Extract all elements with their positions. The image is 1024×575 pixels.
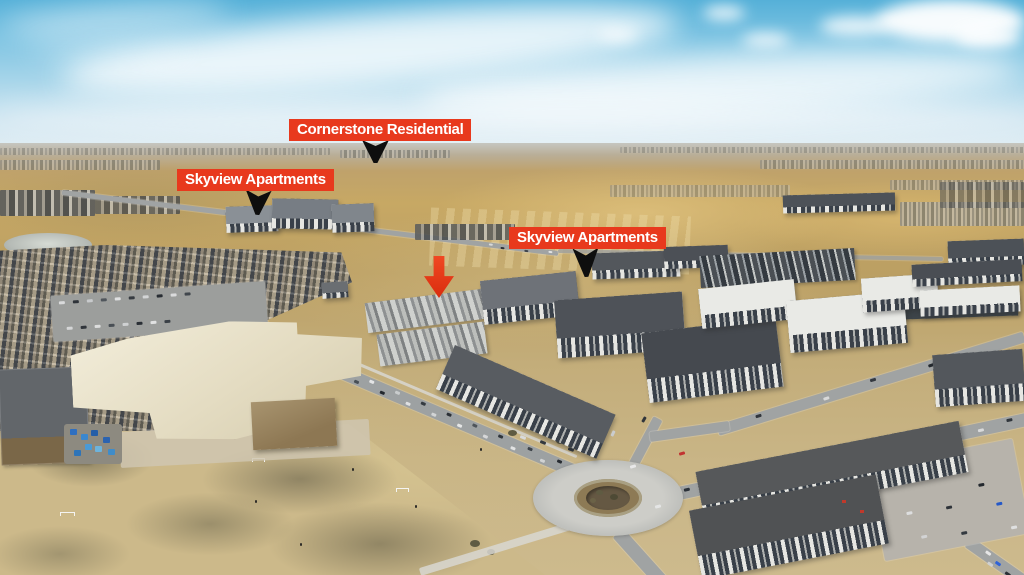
person — [300, 543, 302, 546]
cloud — [0, 95, 1024, 140]
playground-equipment — [70, 429, 77, 435]
shrub — [596, 490, 603, 495]
school-annex — [251, 398, 337, 450]
distant-subdivision — [0, 160, 160, 170]
parked-cars — [59, 301, 65, 304]
cloud — [820, 16, 890, 36]
parked-cars — [489, 243, 493, 245]
playground — [64, 424, 122, 464]
apartment-building — [932, 349, 1024, 407]
person — [415, 505, 417, 508]
cloud — [598, 29, 638, 41]
shrub — [590, 498, 596, 503]
distant-subdivision — [620, 147, 1024, 153]
cloud — [742, 33, 790, 47]
distant-subdivision — [0, 148, 330, 155]
soccer-goal — [60, 512, 75, 516]
tree — [508, 430, 517, 436]
shrub — [470, 540, 480, 547]
distant-subdivision — [610, 185, 790, 197]
skyview-apartments-west-building — [332, 203, 375, 232]
roof-vent — [842, 500, 846, 503]
person — [480, 448, 482, 451]
cars — [755, 414, 762, 419]
cornerstone-residential-area — [340, 150, 450, 158]
roof-vent — [860, 510, 864, 513]
person — [352, 468, 354, 471]
cars — [684, 488, 690, 492]
aerial-photo-scene: Cornerstone Residential Skyview Apartmen… — [0, 0, 1024, 575]
skyview-apartments-west-building — [226, 205, 279, 233]
house — [321, 281, 348, 299]
skyview-apartments-west-building — [272, 198, 339, 229]
cloud — [30, 40, 190, 58]
shrub — [610, 494, 618, 500]
cars — [985, 550, 992, 556]
apartment-building-row — [783, 193, 895, 214]
label-skyview-apartments-west: Skyview Apartments — [177, 169, 334, 191]
commercial-strip-buildings — [415, 224, 515, 240]
apartment-building-white-roof — [919, 285, 1020, 316]
distant-subdivision — [760, 160, 1024, 169]
label-cornerstone-residential: Cornerstone Residential — [289, 119, 471, 141]
cloud — [703, 6, 745, 20]
soccer-goal — [396, 488, 409, 492]
cloud — [955, 26, 1021, 48]
label-skyview-apartments-central: Skyview Apartments — [509, 227, 666, 249]
distant-commercial-buildings — [940, 182, 1024, 208]
person — [255, 500, 257, 503]
